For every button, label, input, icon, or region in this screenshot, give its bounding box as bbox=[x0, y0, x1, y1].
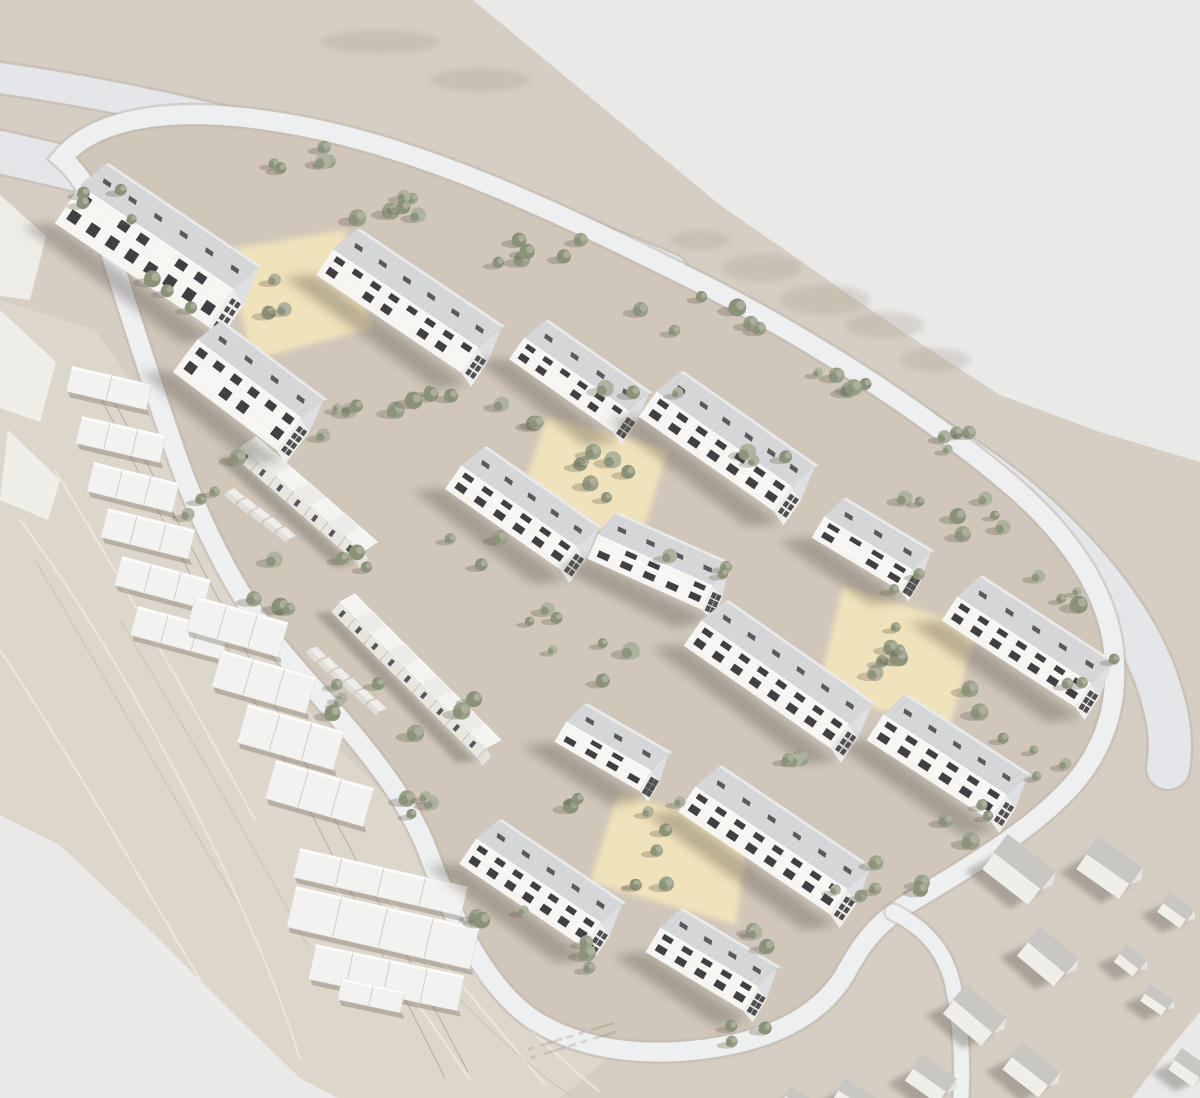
masterplan-render-canvas bbox=[0, 0, 1200, 1098]
masterplan-render bbox=[0, 0, 1200, 1098]
